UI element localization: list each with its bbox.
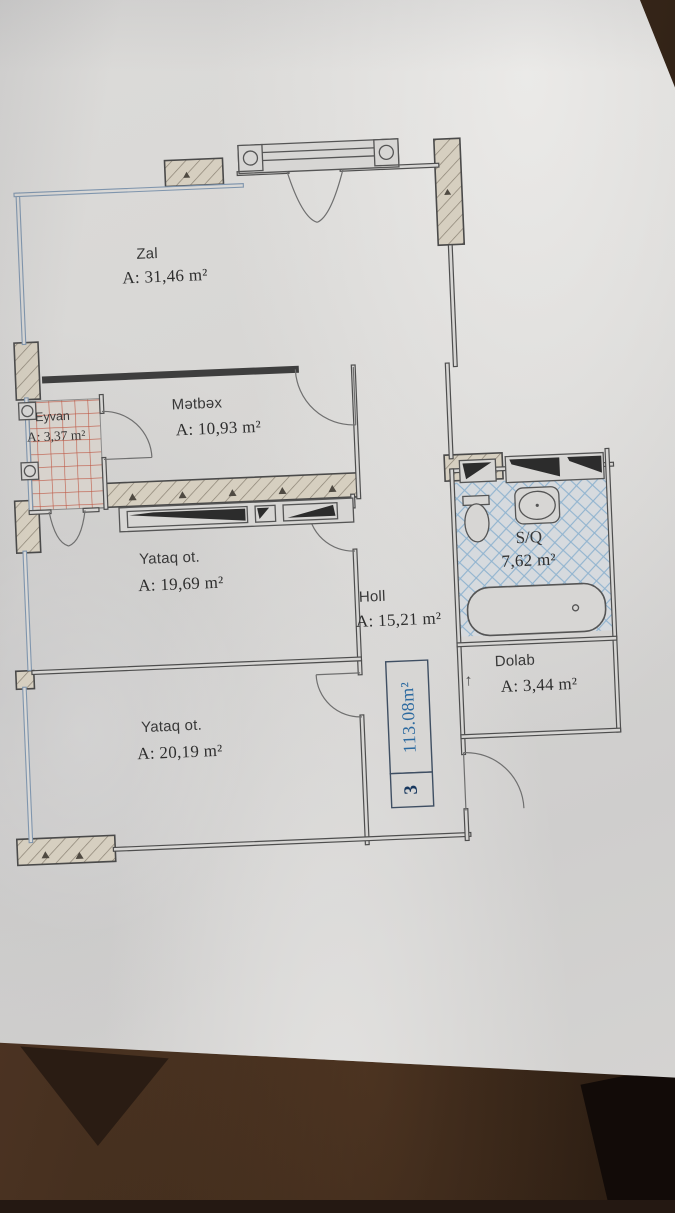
bay-window [238, 139, 399, 174]
bedroom2-door-arc [316, 673, 362, 719]
room-label-sq: S/Q [515, 527, 542, 548]
room-area-eyvan: A: 3,37 m² [27, 427, 86, 445]
plan-linework [0, 0, 675, 1213]
total-area-label: 113.08m² [386, 660, 433, 774]
kitchen-door-arc [295, 367, 355, 427]
room-label-eyvan: Eyvan [35, 409, 70, 424]
bathtub-icon [467, 583, 607, 637]
room-label-yataq2: Yataq ot. [141, 717, 202, 737]
room-area-holl: A: 15,21 m² [356, 608, 442, 632]
eyvan-bedroom-door-arc [49, 510, 86, 546]
room-area-zal: A: 31,46 m² [122, 265, 208, 289]
room-area-yataq2: A: 20,19 m² [137, 741, 223, 765]
balcony-door-arc [287, 169, 345, 223]
room-label-holl: Holl [359, 588, 386, 606]
room-label-zal: Zal [136, 245, 158, 263]
room-label-dolab: Dolab [494, 652, 535, 671]
room-area-dolab: A: 3,44 m² [500, 674, 577, 697]
eyvan-door-arc [102, 409, 152, 459]
room-label-yataq1: Yataq ot. [139, 549, 200, 569]
sink-icon [515, 486, 560, 524]
room-area-metbex: A: 10,93 m² [175, 417, 261, 441]
unit-number-label: 3 [390, 772, 433, 808]
entrance-door-arc [464, 750, 524, 810]
room-area-sq: 7,62 m² [501, 550, 556, 572]
room-label-metbex: Mətbəx [171, 394, 222, 413]
floor-plan-drawing: Zal A: 31,46 m² Eyvan A: 3,37 m² Mətbəx … [0, 0, 675, 1213]
room-area-yataq1: A: 19,69 m² [138, 573, 224, 597]
floor-plan-photo: Zal A: 31,46 m² Eyvan A: 3,37 m² Mətbəx … [0, 0, 675, 1200]
dolab-direction-arrow: ↑ [464, 672, 473, 690]
